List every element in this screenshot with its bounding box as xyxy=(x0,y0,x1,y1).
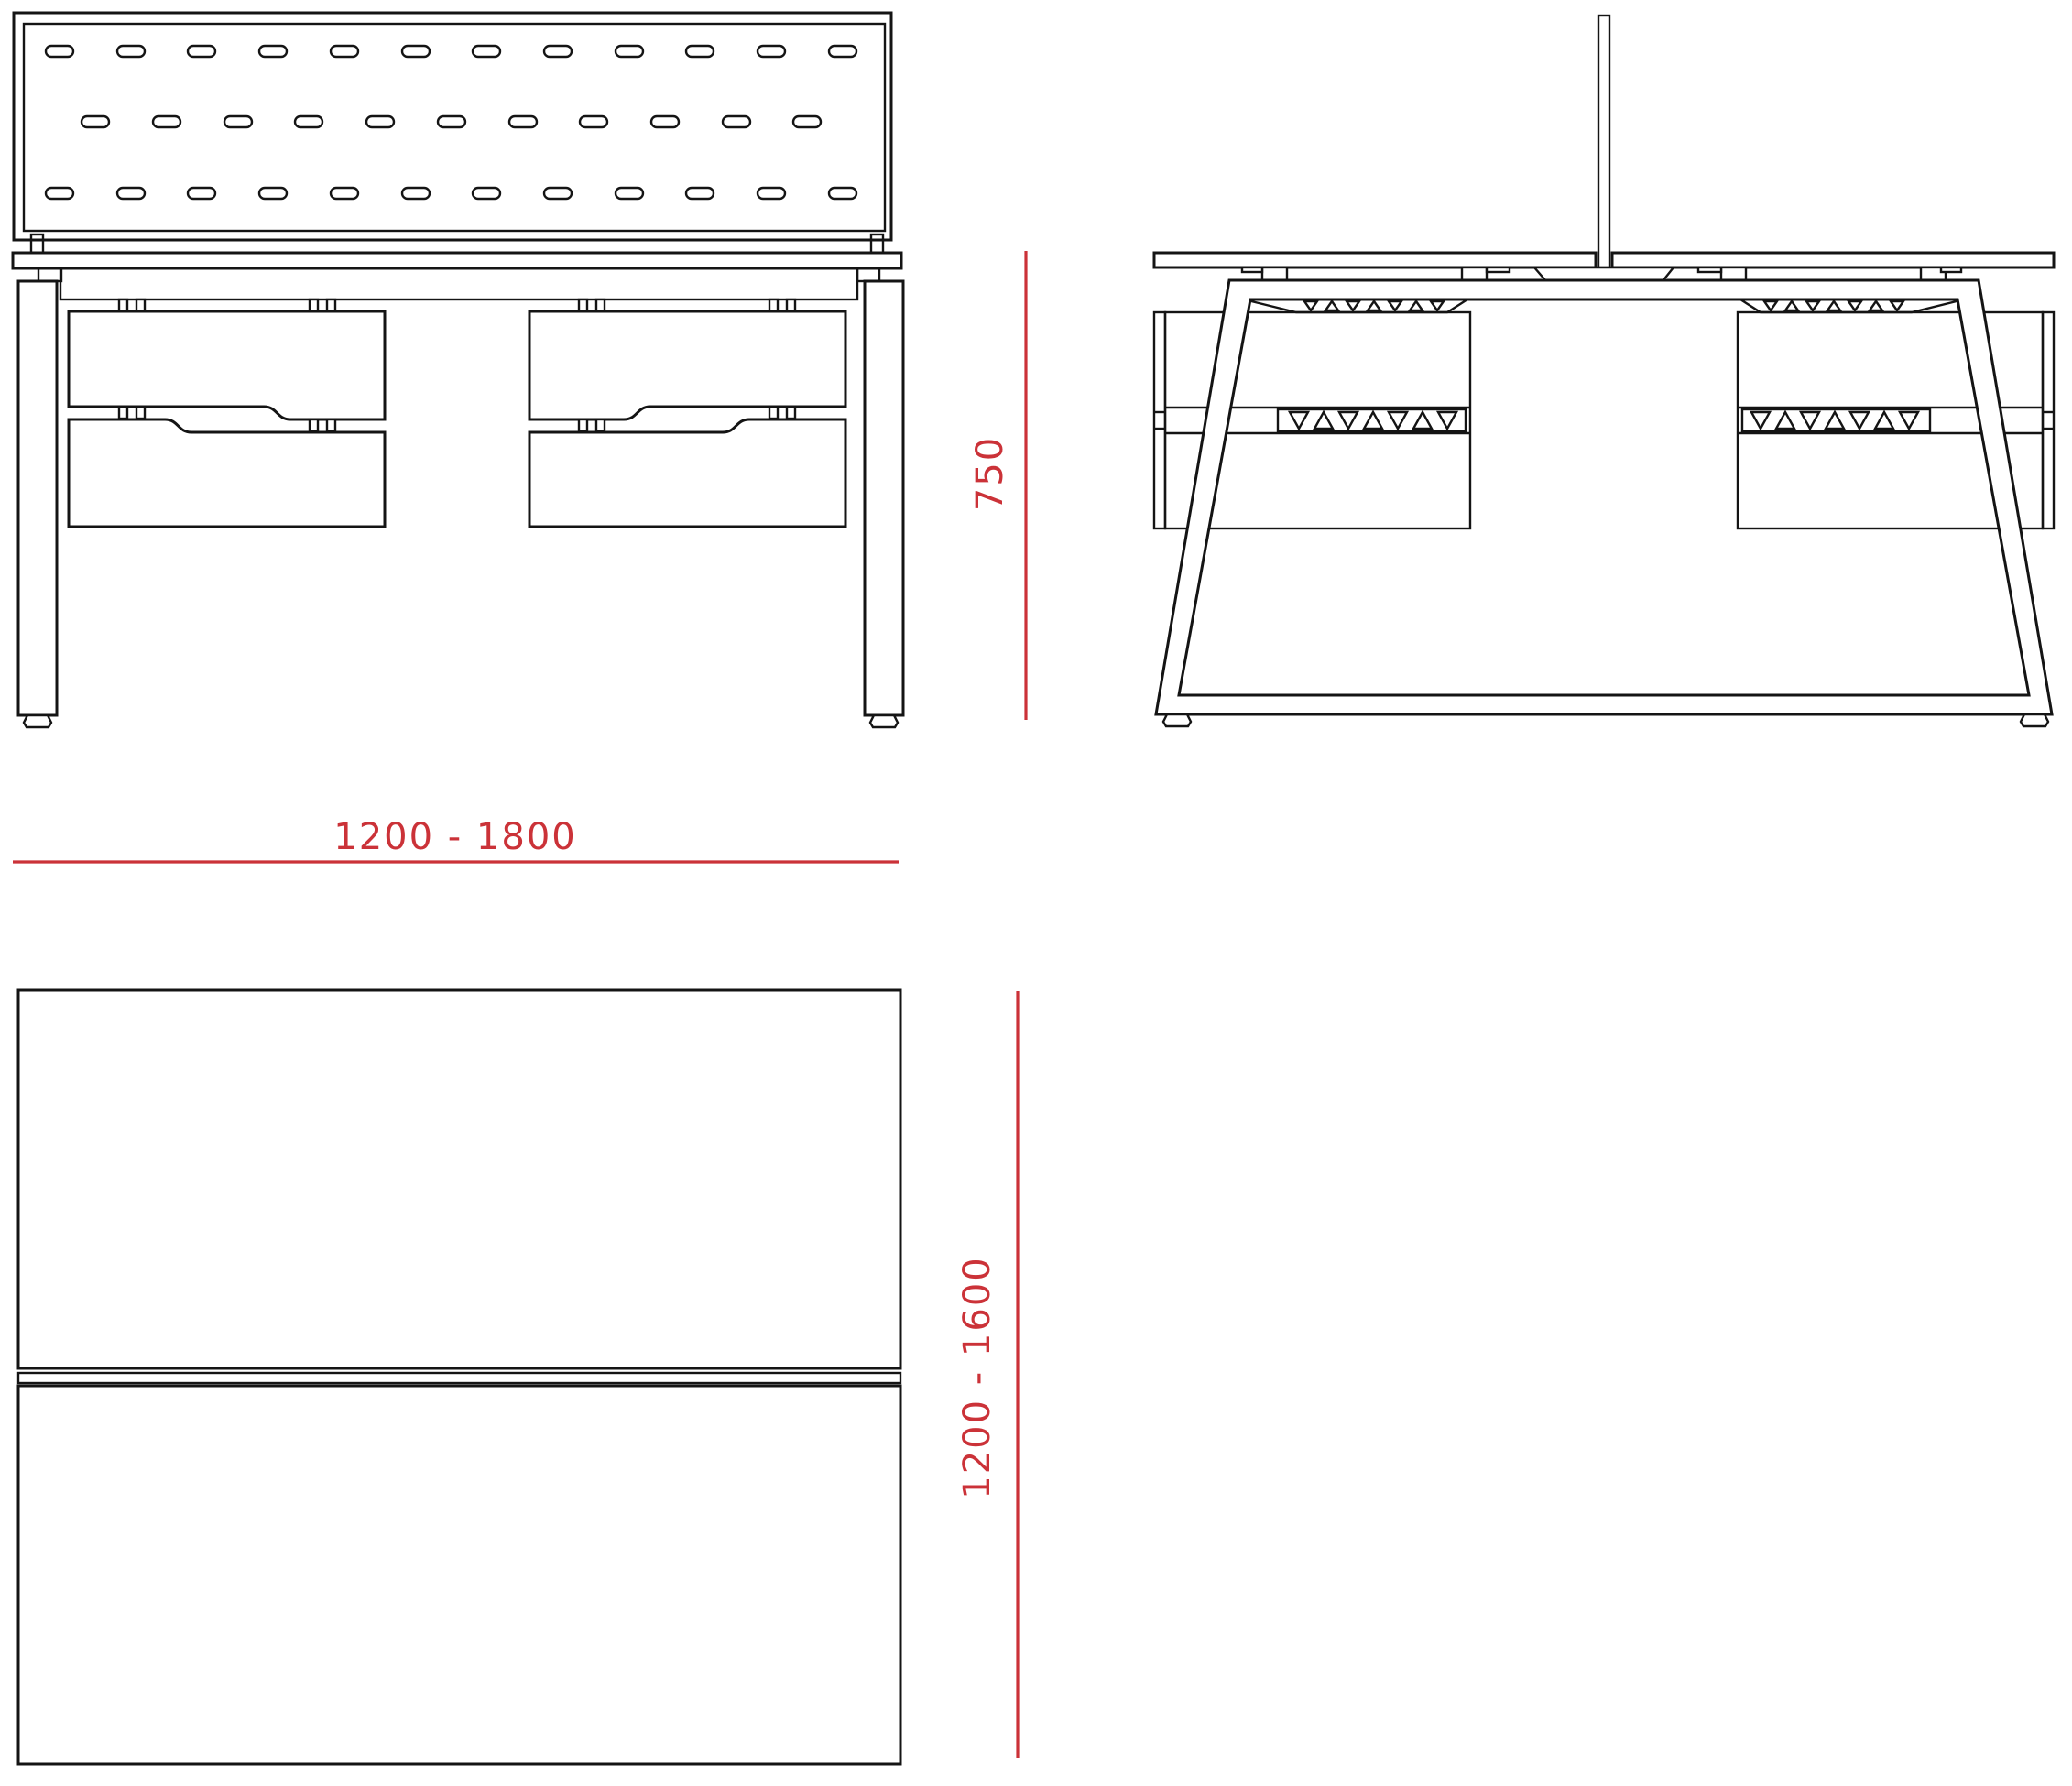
handle-band-triangles xyxy=(1751,412,1918,429)
desktop-side-left xyxy=(1154,253,1596,267)
vent-triangles-top xyxy=(1304,301,1444,310)
desk-screen-panel xyxy=(14,13,891,253)
desk-technical-drawing: 1200 - 1800 750 1200 - 1600 xyxy=(0,0,2072,1786)
leveling-foot xyxy=(24,715,51,727)
leveling-foot xyxy=(2021,714,2048,726)
handle-band-triangles xyxy=(1290,412,1456,429)
plan-view xyxy=(18,990,900,1764)
front-elevation-view xyxy=(13,13,903,727)
drawer-front-edge xyxy=(2043,312,2054,528)
drawer-top-right xyxy=(529,311,845,419)
screen-support-bracket-left xyxy=(31,234,43,253)
pedestal-left-front xyxy=(69,299,385,527)
width-dimension-label: 1200 - 1800 xyxy=(333,816,576,858)
leveling-foot xyxy=(870,715,898,727)
side-elevation-view xyxy=(1154,16,2054,726)
drawer-bottom-left xyxy=(69,419,385,527)
desktop-plan-front xyxy=(18,1386,900,1764)
depth-dimension-label: 1200 - 1600 xyxy=(956,1256,998,1498)
drawer-bottom-right xyxy=(529,419,845,527)
desktop-seam xyxy=(18,1373,900,1383)
screen-support-bracket-right xyxy=(871,234,883,253)
desktop-plan-back xyxy=(18,990,900,1368)
divider-screen xyxy=(1598,16,1609,267)
a-frame-leg-loop xyxy=(1156,280,2052,714)
height-dimension-label: 750 xyxy=(969,436,1011,511)
desk-leg-left xyxy=(18,281,57,715)
pedestal-right-front xyxy=(529,299,845,527)
frame-rail-front xyxy=(60,268,857,299)
rail-leg-connector-right xyxy=(857,268,879,281)
screen-perforation-slots xyxy=(46,46,856,199)
rail-leg-connector-left xyxy=(38,268,61,281)
desktop-front xyxy=(13,253,901,268)
vent-triangles-top xyxy=(1764,301,1903,310)
desk-leg-right xyxy=(865,281,903,715)
leveling-foot xyxy=(1163,714,1191,726)
drawer-top-left xyxy=(69,311,385,419)
technical-drawing-page: 1200 - 1800 750 1200 - 1600 xyxy=(0,0,2072,1786)
drawer-front-edge xyxy=(1154,312,1165,528)
desktop-side-right xyxy=(1612,253,2054,267)
